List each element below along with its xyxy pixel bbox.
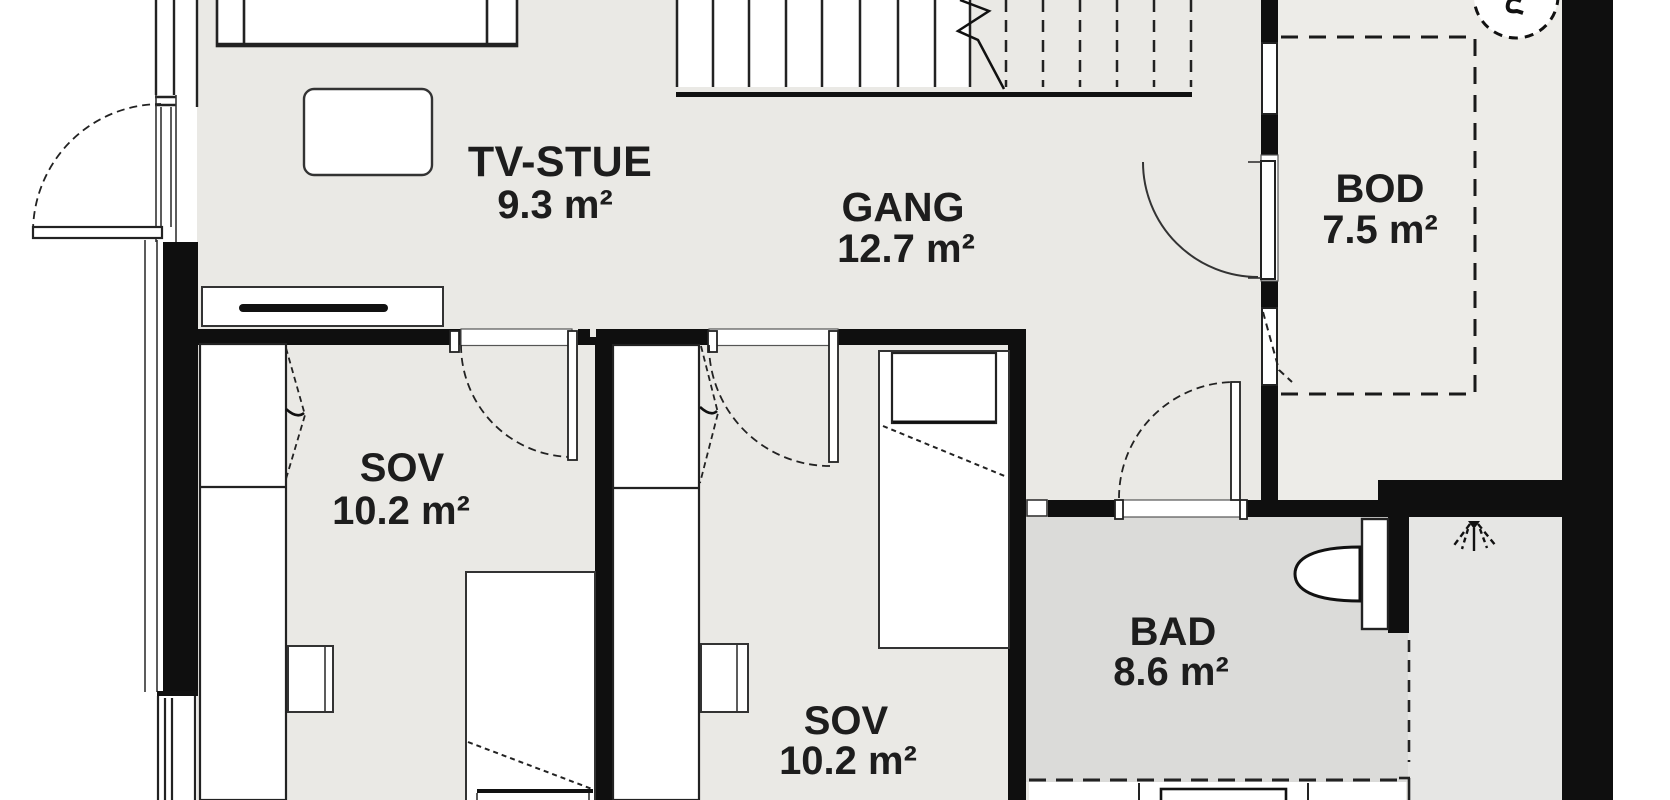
svg-text:TV-STUE: TV-STUE — [468, 138, 652, 186]
svg-text:BOD: BOD — [1336, 167, 1425, 211]
svg-text:8.6 m²: 8.6 m² — [1113, 650, 1229, 694]
svg-text:BAD: BAD — [1130, 610, 1217, 654]
svg-text:GANG: GANG — [842, 184, 965, 230]
svg-text:9.3 m²: 9.3 m² — [497, 183, 613, 227]
svg-text:12.7 m²: 12.7 m² — [837, 227, 975, 271]
svg-text:SOV: SOV — [360, 446, 445, 490]
svg-text:7.5 m²: 7.5 m² — [1322, 208, 1438, 252]
svg-text:SOV: SOV — [804, 699, 889, 743]
svg-text:10.2 m²: 10.2 m² — [332, 489, 470, 533]
svg-text:10.2 m²: 10.2 m² — [779, 739, 917, 783]
